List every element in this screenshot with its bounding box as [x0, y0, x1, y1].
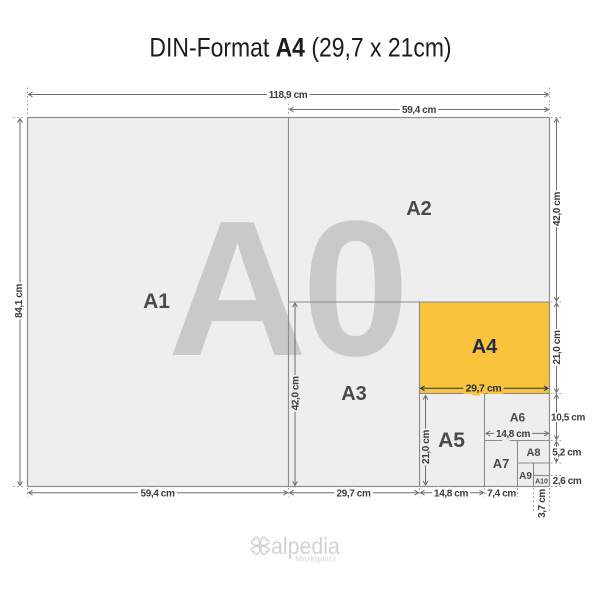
svg-text:2,6 cm: 2,6 cm: [553, 476, 582, 487]
svg-text:A0: A0: [168, 180, 405, 396]
svg-text:A10: A10: [535, 479, 548, 486]
svg-text:10,5 cm: 10,5 cm: [551, 413, 585, 424]
svg-text:A9: A9: [519, 471, 532, 482]
svg-text:59,4 cm: 59,4 cm: [402, 105, 436, 116]
svg-text:21,0 cm: 21,0 cm: [552, 330, 563, 364]
svg-text:A4: A4: [472, 336, 498, 358]
svg-text:A7: A7: [493, 456, 510, 471]
svg-text:DIN-Format A4 (29,7 x 21cm): DIN-Format A4 (29,7 x 21cm): [149, 33, 451, 63]
svg-text:59,4 cm: 59,4 cm: [141, 488, 175, 499]
svg-text:42,0 cm: 42,0 cm: [552, 192, 563, 226]
svg-text:5,2 cm: 5,2 cm: [552, 448, 581, 459]
svg-text:Marktplatz: Marktplatz: [295, 555, 336, 564]
svg-text:A8: A8: [526, 447, 540, 459]
svg-text:A1: A1: [143, 290, 170, 313]
svg-text:A6: A6: [510, 411, 526, 425]
svg-text:118,9 cm: 118,9 cm: [269, 90, 308, 101]
svg-text:A2: A2: [406, 198, 432, 220]
svg-text:21,0 cm: 21,0 cm: [421, 430, 432, 464]
svg-text:7,4 cm: 7,4 cm: [487, 488, 516, 499]
svg-text:29,7 cm: 29,7 cm: [466, 382, 502, 394]
svg-text:A5: A5: [438, 429, 465, 452]
svg-text:42,0 cm: 42,0 cm: [291, 376, 302, 410]
svg-text:3,7 cm: 3,7 cm: [537, 489, 548, 518]
svg-text:29,7 cm: 29,7 cm: [337, 488, 371, 499]
svg-text:14,8 cm: 14,8 cm: [434, 488, 468, 499]
svg-text:84,1 cm: 84,1 cm: [14, 284, 25, 318]
svg-text:A3: A3: [341, 383, 367, 405]
svg-text:14,8 cm: 14,8 cm: [496, 429, 530, 440]
